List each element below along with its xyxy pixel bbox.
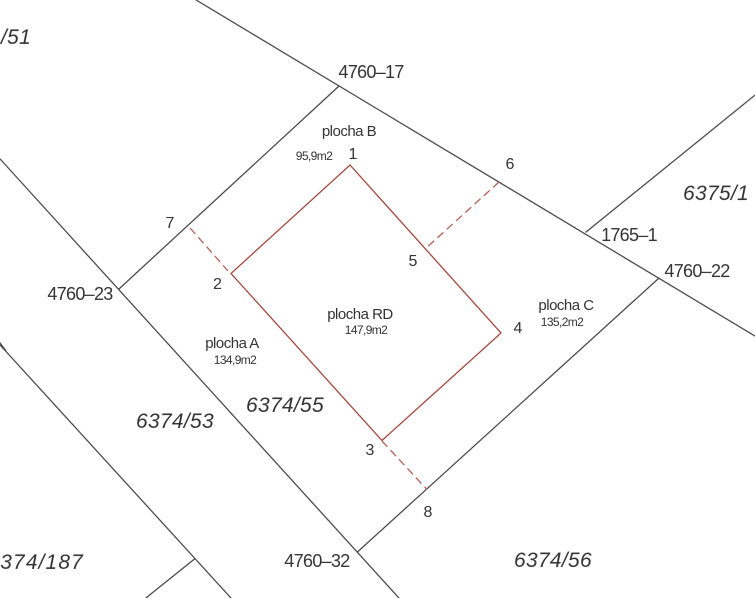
- svg-text:6374/56: 6374/56: [514, 549, 592, 572]
- svg-text:3: 3: [366, 442, 375, 459]
- svg-text:6375/1: 6375/1: [683, 182, 749, 205]
- svg-text:6374/51: 6374/51: [0, 26, 31, 49]
- svg-text:4: 4: [514, 320, 523, 337]
- svg-text:7: 7: [166, 215, 175, 232]
- svg-text:6374/53: 6374/53: [136, 410, 214, 433]
- svg-text:4760–22: 4760–22: [664, 261, 730, 281]
- svg-text:6: 6: [506, 156, 515, 173]
- svg-text:plocha RD: plocha RD: [327, 306, 393, 323]
- svg-text:1765–1: 1765–1: [601, 225, 658, 245]
- svg-text:134,9m2: 134,9m2: [214, 353, 257, 367]
- svg-text:147,9m2: 147,9m2: [345, 323, 388, 337]
- svg-text:8: 8: [423, 504, 432, 521]
- svg-text:6374/187: 6374/187: [0, 551, 84, 574]
- svg-text:5: 5: [409, 253, 418, 270]
- svg-text:1: 1: [349, 146, 358, 163]
- svg-text:2: 2: [213, 276, 222, 293]
- svg-text:plocha A: plocha A: [205, 335, 259, 352]
- svg-text:4760–32: 4760–32: [284, 551, 350, 571]
- svg-text:plocha B: plocha B: [322, 123, 377, 140]
- svg-text:135,2m2: 135,2m2: [541, 315, 584, 329]
- svg-text:4760–23: 4760–23: [47, 284, 113, 304]
- svg-text:4760–17: 4760–17: [338, 62, 404, 82]
- svg-text:6374/55: 6374/55: [246, 394, 324, 417]
- svg-text:plocha C: plocha C: [538, 297, 594, 314]
- svg-text:95,9m2: 95,9m2: [296, 149, 333, 163]
